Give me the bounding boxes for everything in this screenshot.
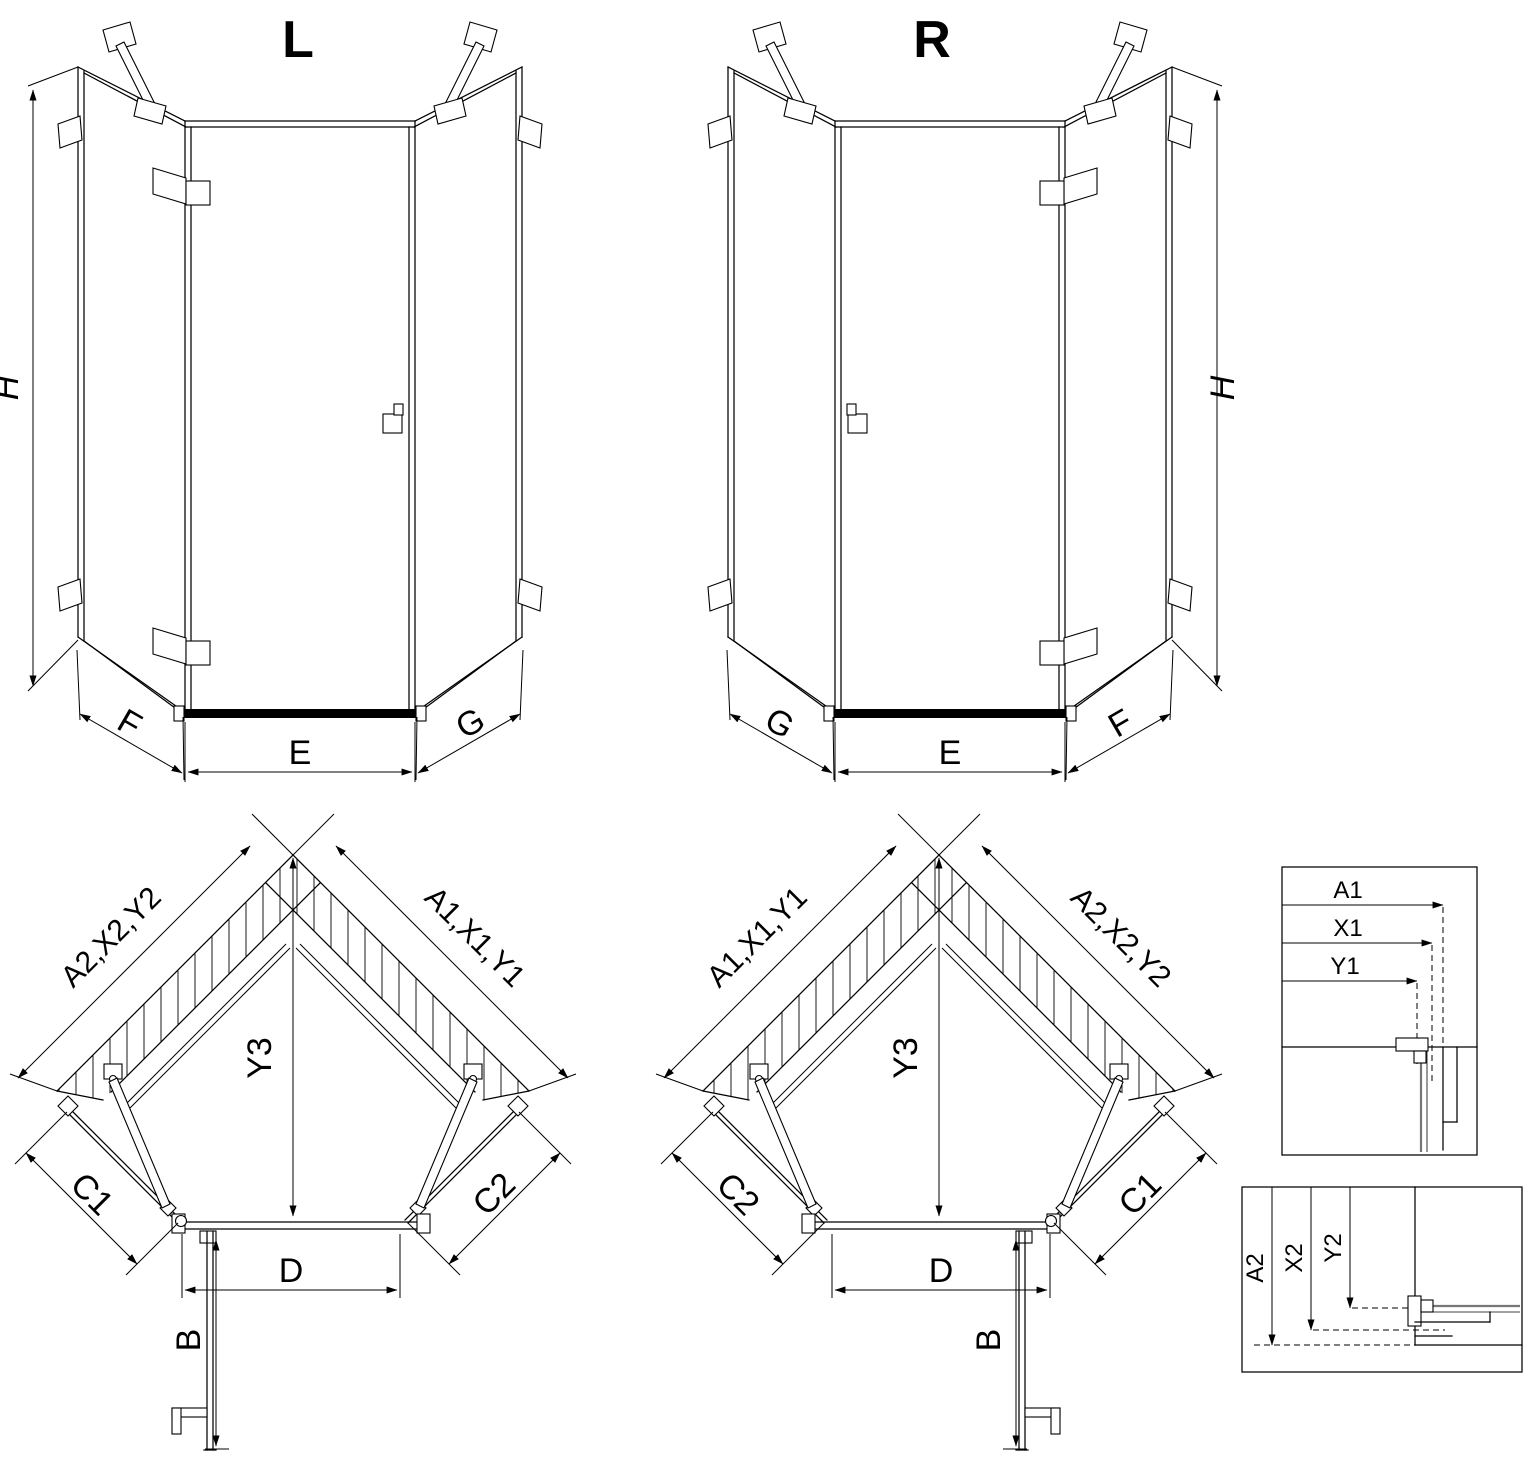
plan-right-view: A1,X1,Y1 A2,X2,Y2 Y3 C2 C1 D B: [656, 814, 1222, 1450]
glass-profile-section-top: [1396, 1038, 1457, 1152]
diagram-svg: L H F E G R H G E F A2,X2,Y2 A1,X1,Y1 Y3…: [0, 0, 1530, 1461]
detail-top-x1-label: X1: [1333, 915, 1362, 942]
view-title-right: R: [913, 11, 951, 69]
detail-box-bottom: A2 X2 Y2: [1242, 1187, 1522, 1372]
plan-right-depth-label: Y3: [887, 1037, 925, 1079]
detail-bottom-x2-label: X2: [1281, 1243, 1308, 1272]
plan-left-depth-label: Y3: [241, 1037, 279, 1079]
plan-left-wall-right-label: A1,X1,Y1: [418, 881, 531, 994]
plan-left-view: A2,X2,Y2 A1,X1,Y1 Y3 C1 C2 D B: [10, 814, 576, 1450]
detail-bottom-a2-label: A2: [1242, 1253, 1269, 1282]
dim-label-f-left: F: [111, 702, 148, 745]
plan-left-door-swing-label: B: [170, 1329, 208, 1352]
detail-box-top: A1 X1 Y1: [1282, 867, 1477, 1155]
view-title-left: L: [282, 11, 314, 69]
plan-right-door-swing-label: B: [970, 1329, 1008, 1352]
shower-enclosure-diagram: L H F E G R H G E F A2,X2,Y2 A1,X1,Y1 Y3…: [0, 0, 1530, 1461]
dim-label-h-right: H: [1204, 375, 1242, 400]
detail-top-a1-label: A1: [1333, 877, 1362, 904]
plan-right-wall-left-label: A1,X1,Y1: [701, 881, 814, 994]
plan-left-side-right-label: C2: [465, 1165, 523, 1223]
dim-label-g-left: G: [450, 700, 492, 746]
dim-label-e-left: E: [289, 734, 312, 772]
plan-right-wall-right-label: A2,X2,Y2: [1064, 881, 1177, 994]
dim-label-h-left: H: [0, 375, 26, 400]
plan-right-door-width-label: D: [929, 1252, 954, 1290]
dim-label-f-right: F: [1102, 702, 1139, 745]
plan-right-side-right-label: C1: [1111, 1165, 1169, 1223]
dim-label-e-right: E: [939, 734, 962, 772]
detail-top-y1-label: Y1: [1330, 953, 1359, 980]
detail-bottom-y2-label: Y2: [1320, 1233, 1347, 1262]
iso-left-view: L H F E G: [0, 11, 542, 782]
plan-left-door-width-label: D: [279, 1252, 304, 1290]
plan-left-side-left-label: C1: [63, 1165, 121, 1223]
dim-label-g-right: G: [759, 700, 801, 746]
iso-right-view: R H G E F: [708, 11, 1242, 782]
plan-right-side-left-label: C2: [709, 1165, 767, 1223]
glass-profile-section-bottom: [1408, 1296, 1522, 1345]
plan-left-wall-left-label: A2,X2,Y2: [55, 881, 168, 994]
